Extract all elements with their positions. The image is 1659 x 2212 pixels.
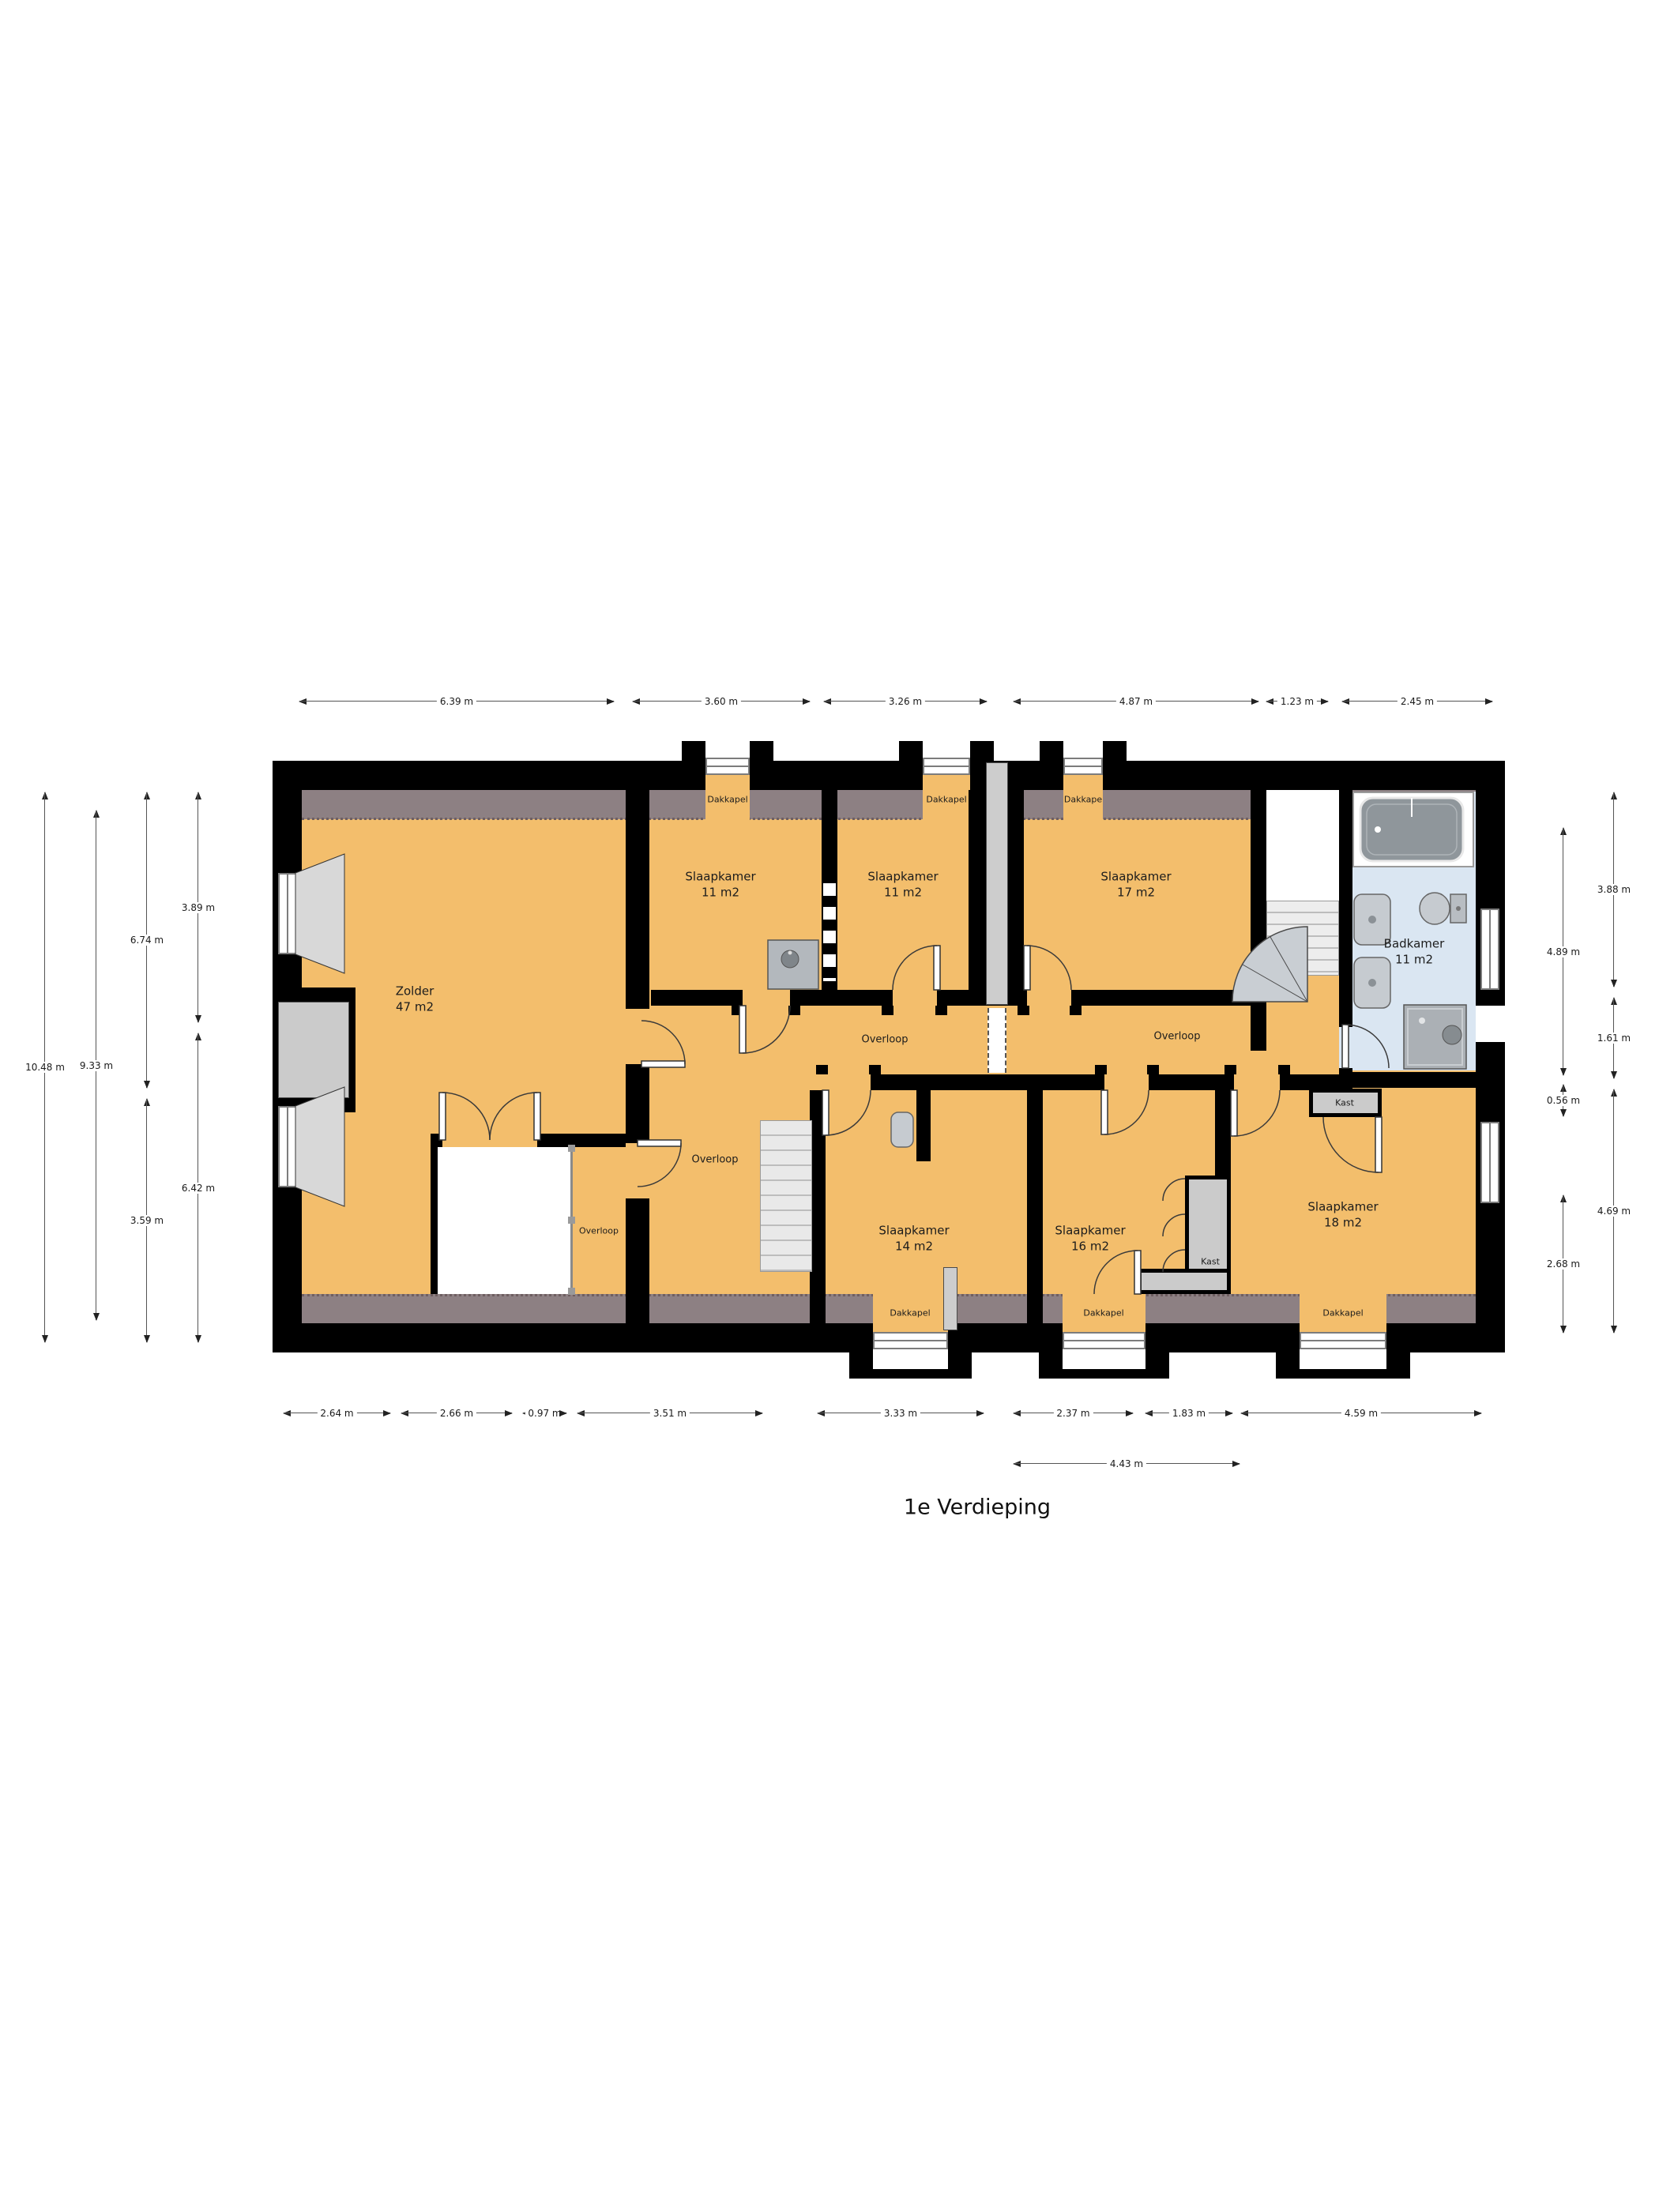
dim-top-3: 4.87 m — [1013, 697, 1259, 706]
window-right-1 — [1480, 908, 1499, 990]
dormer-top-3-window — [1063, 758, 1103, 775]
staircase-main — [760, 1120, 812, 1272]
duct-strip — [943, 1267, 957, 1330]
dormer-top-1-window — [705, 758, 750, 775]
dim-bottom-3: 3.51 m — [577, 1409, 763, 1418]
label-overloop-passage: Overloop — [579, 1226, 619, 1236]
room-label-slaapkamer-c: Slaapkamer17 m2 — [1100, 870, 1171, 901]
label-dakkapel-top-1: Dakkapel — [707, 795, 747, 805]
label-overloop-east: Overloop — [1153, 1031, 1200, 1043]
dormer-top-3-notch — [1063, 741, 1103, 758]
dormer-top-2-window — [923, 758, 970, 775]
door-stop — [882, 1006, 893, 1015]
dormer-bottom-3-window — [1300, 1332, 1386, 1349]
dim-right-1: 0.56 m — [1559, 1084, 1568, 1117]
label-dakkapel-top-3: Dakkape — [1064, 795, 1102, 805]
niche-inner — [278, 1002, 349, 1098]
dormer-bottom-3-notch — [1300, 1349, 1386, 1369]
wall-segment — [626, 1198, 649, 1323]
wall-segment — [626, 790, 649, 1009]
dormer-bottom-2-window — [1063, 1332, 1145, 1349]
dormer-top-2-notch — [923, 741, 970, 758]
wall-segment — [871, 1074, 1104, 1090]
dim-top-4: 1.23 m — [1266, 697, 1329, 706]
dim-bottom-4: 3.33 m — [817, 1409, 984, 1418]
window-right-2 — [1480, 1122, 1499, 1203]
label-overloop-hall: Overloop — [691, 1154, 738, 1166]
dim-top-1: 3.60 m — [632, 697, 811, 706]
floorplan-page: Zolder47 m2 Slaapkamer11 m2 Slaapkamer11… — [0, 0, 1659, 2212]
chimney-strip — [986, 762, 1008, 1005]
door-stop — [1278, 1065, 1290, 1074]
wall-notch-right — [1476, 1006, 1505, 1042]
dim-left-3: 3.59 m — [142, 1098, 152, 1343]
door-stop — [1147, 1065, 1159, 1074]
wall-segment — [1215, 1090, 1231, 1177]
label-dakkapel-bottom-3: Dakkapel — [1322, 1308, 1363, 1319]
closet-kast-bedroom-foot — [1138, 1269, 1231, 1294]
room-label-badkamer: Badkamer11 m2 — [1384, 937, 1445, 968]
stair-void — [438, 1147, 572, 1294]
wall-segment — [1008, 790, 1024, 990]
wall-segment — [626, 1064, 649, 1143]
window-left-2 — [278, 1106, 297, 1187]
dim-left-4: 3.89 m — [194, 792, 203, 1023]
room-label-slaapkamer-d: Slaapkamer14 m2 — [878, 1224, 949, 1255]
wall-segment — [969, 790, 986, 990]
door-stop — [869, 1065, 881, 1074]
stairwell-void — [1266, 790, 1339, 901]
door-stop — [732, 1006, 743, 1015]
label-kast-bath: Kast — [1335, 1098, 1354, 1108]
dormer-bottom-2-notch — [1063, 1349, 1145, 1369]
door-stop — [1224, 1065, 1236, 1074]
page-title: 1e Verdieping — [904, 1495, 1051, 1520]
wall-segment — [1027, 1090, 1043, 1323]
label-overloop-west: Overloop — [861, 1034, 908, 1046]
wall-segment — [651, 990, 743, 1006]
wall-stub — [916, 1090, 931, 1161]
room-label-slaapkamer-f: Slaapkamer18 m2 — [1307, 1200, 1378, 1231]
bathroom-door-gap — [1339, 1027, 1352, 1068]
door-stop — [1095, 1065, 1107, 1074]
staircase-upper — [1266, 901, 1339, 976]
wall-segment — [1149, 1074, 1234, 1090]
door-stop — [1018, 1006, 1029, 1015]
wall-segment — [431, 1147, 438, 1294]
dim-bottom-0: 2.64 m — [283, 1409, 391, 1418]
wall-exterior-right — [1476, 761, 1505, 1352]
dim-bottom-2: 0.97 m — [522, 1409, 567, 1418]
dormer-bottom-1-notch — [873, 1349, 948, 1369]
dim-left-1: 9.33 m — [92, 810, 101, 1321]
corridor-dashed-passage — [987, 1008, 1006, 1073]
label-kast-bedroom: Kast — [1201, 1257, 1220, 1267]
wall-segment — [790, 990, 893, 1006]
room-label-slaapkamer-a: Slaapkamer11 m2 — [685, 870, 755, 901]
label-dakkapel-bottom-1: Dakkapel — [890, 1308, 930, 1319]
wall-segment — [431, 1134, 442, 1147]
dim-left-5: 6.42 m — [194, 1033, 203, 1343]
dim-bottom-7: 4.59 m — [1240, 1409, 1482, 1418]
dormer-bottom-1-window — [873, 1332, 948, 1349]
room-label-zolder: Zolder47 m2 — [396, 984, 434, 1015]
dim-right-4: 1.61 m — [1609, 997, 1619, 1079]
wall-segment — [1251, 790, 1266, 1051]
dormer-top-1-notch — [705, 741, 750, 758]
label-dakkapel-top-2: Dakkapel — [926, 795, 966, 805]
dim-top-5: 2.45 m — [1341, 697, 1493, 706]
dim-top-0: 6.39 m — [299, 697, 615, 706]
railing-post — [568, 1145, 575, 1152]
wall-dashed-opening — [823, 883, 836, 981]
dim-right-3: 3.88 m — [1609, 792, 1619, 987]
door-stop — [1070, 1006, 1082, 1015]
dim-bottom-6: 1.83 m — [1145, 1409, 1233, 1418]
dim-bottom-5: 2.37 m — [1013, 1409, 1134, 1418]
dim-left-2: 6.74 m — [142, 792, 152, 1089]
dim-top-2: 3.26 m — [823, 697, 987, 706]
room-label-slaapkamer-b: Slaapkamer11 m2 — [867, 870, 938, 901]
door-stop — [788, 1006, 800, 1015]
railing-post — [568, 1217, 575, 1224]
label-dakkapel-bottom-2: Dakkapel — [1083, 1308, 1123, 1319]
wall-segment — [1071, 990, 1251, 1006]
wall-exterior-top — [273, 761, 1505, 790]
dim-right-0: 4.89 m — [1559, 827, 1568, 1076]
wall-segment — [1280, 1074, 1352, 1090]
door-stop — [935, 1006, 947, 1015]
wall-segment — [1339, 790, 1352, 1027]
dim-right-2: 2.68 m — [1559, 1194, 1568, 1334]
room-label-slaapkamer-e: Slaapkamer16 m2 — [1055, 1224, 1125, 1255]
dim-right-5: 4.69 m — [1609, 1089, 1619, 1334]
wall-segment — [810, 1090, 826, 1323]
wall-segment — [1352, 1072, 1476, 1088]
window-left-1 — [278, 873, 297, 954]
wall-segment — [537, 1134, 626, 1147]
wall-segment — [937, 990, 1027, 1006]
bathtub-niche — [1352, 792, 1474, 867]
dim-left-0: 10.48 m — [40, 792, 50, 1343]
dim-bottom-1: 2.66 m — [401, 1409, 513, 1418]
door-stop — [816, 1065, 828, 1074]
dim-bottom-row2-0: 4.43 m — [1013, 1459, 1240, 1469]
railing-post — [568, 1288, 575, 1295]
